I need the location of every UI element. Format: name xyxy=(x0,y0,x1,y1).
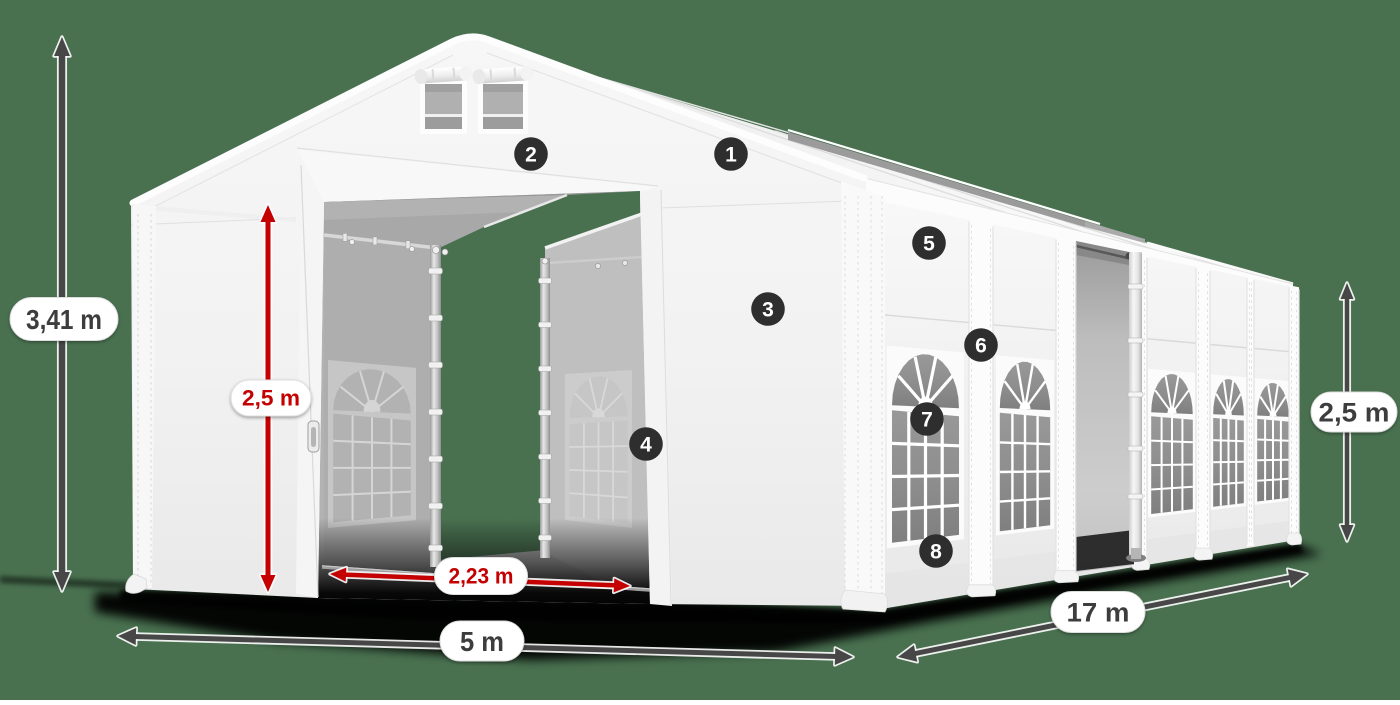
svg-text:2,23 m: 2,23 m xyxy=(449,564,514,589)
svg-text:5 m: 5 m xyxy=(460,626,504,657)
svg-text:6: 6 xyxy=(975,334,987,357)
svg-text:3: 3 xyxy=(762,298,774,321)
svg-text:7: 7 xyxy=(921,408,933,431)
svg-text:5: 5 xyxy=(923,232,935,255)
svg-text:2,5 m: 2,5 m xyxy=(242,386,300,411)
svg-text:3,41 m: 3,41 m xyxy=(26,304,102,335)
svg-text:2: 2 xyxy=(525,143,537,166)
svg-text:8: 8 xyxy=(930,540,942,563)
svg-text:1: 1 xyxy=(725,143,737,166)
svg-text:17 m: 17 m xyxy=(1067,598,1130,628)
svg-text:4: 4 xyxy=(640,433,652,456)
svg-text:2,5 m: 2,5 m xyxy=(1319,397,1390,427)
